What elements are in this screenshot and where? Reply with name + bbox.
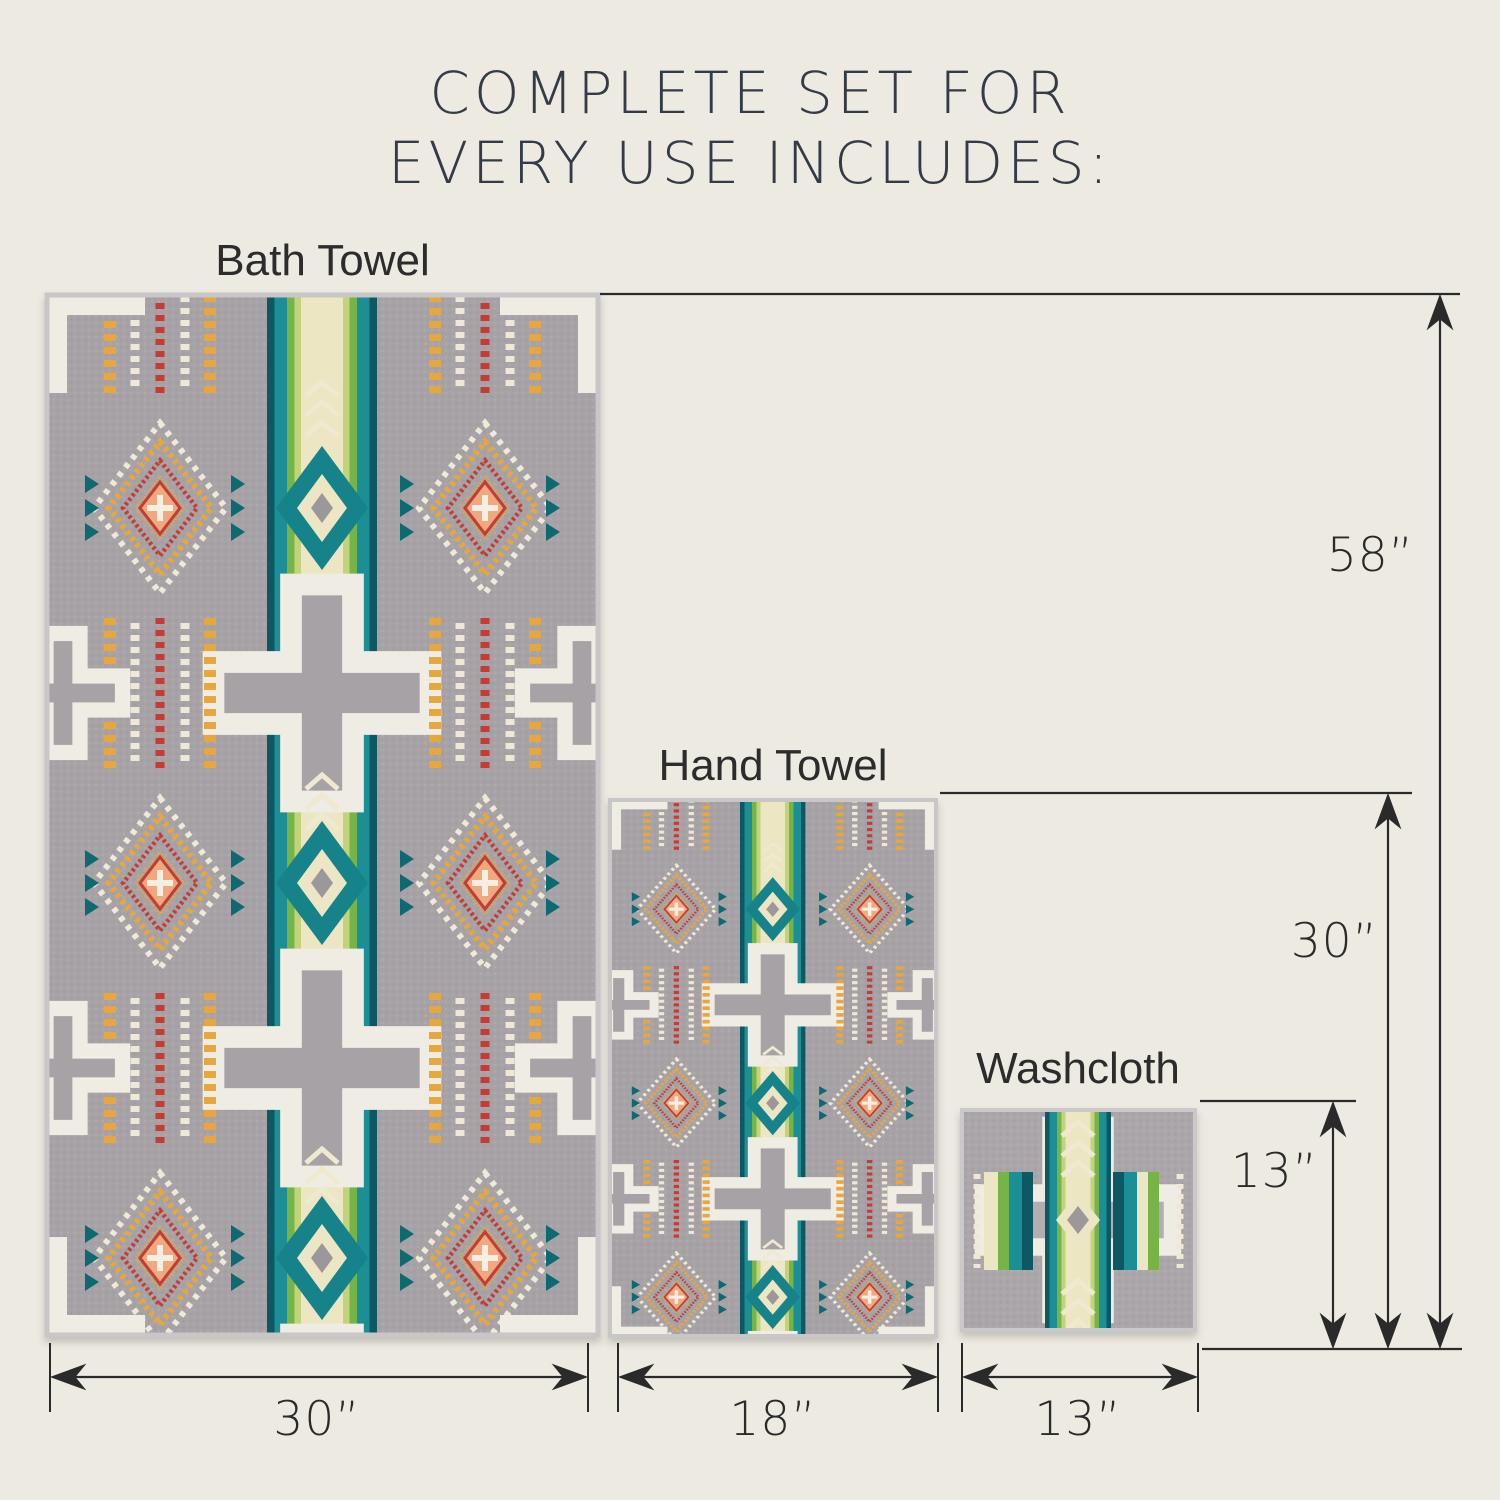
title-line-1: COMPLETE SET FOR <box>0 58 1500 128</box>
title-line-2: EVERY USE INCLUDES: <box>0 128 1500 198</box>
bath-towel-label: Bath Towel <box>45 236 600 286</box>
washcloth-image <box>960 1108 1197 1334</box>
dim-arrow-bath-width <box>53 1366 585 1388</box>
dim-arrow-hand-height <box>1377 796 1399 1346</box>
bath-height-value: 58” <box>1254 528 1414 583</box>
bath-towel-image <box>4 243 642 1500</box>
hand-towel-label: Hand Towel <box>608 741 938 791</box>
wash-width-value: 13” <box>958 1392 1198 1447</box>
dim-arrow-bath-height <box>1429 297 1451 1346</box>
hand-towel-image <box>583 772 962 1449</box>
dim-arrow-wash-height <box>1322 1104 1344 1346</box>
bath-width-value: 30” <box>47 1392 587 1447</box>
infographic-canvas: COMPLETE SET FOR EVERY USE INCLUDES: Bat… <box>0 0 1500 1500</box>
hand-height-value: 30” <box>1218 914 1378 969</box>
washcloth-label: Washcloth <box>948 1044 1208 1094</box>
dim-arrow-hand-width <box>621 1366 935 1388</box>
hand-width-value: 18” <box>608 1392 938 1447</box>
wash-height-value: 13” <box>1158 1144 1318 1199</box>
page-title: COMPLETE SET FOR EVERY USE INCLUDES: <box>0 58 1500 198</box>
dim-arrow-wash-width <box>965 1366 1195 1388</box>
